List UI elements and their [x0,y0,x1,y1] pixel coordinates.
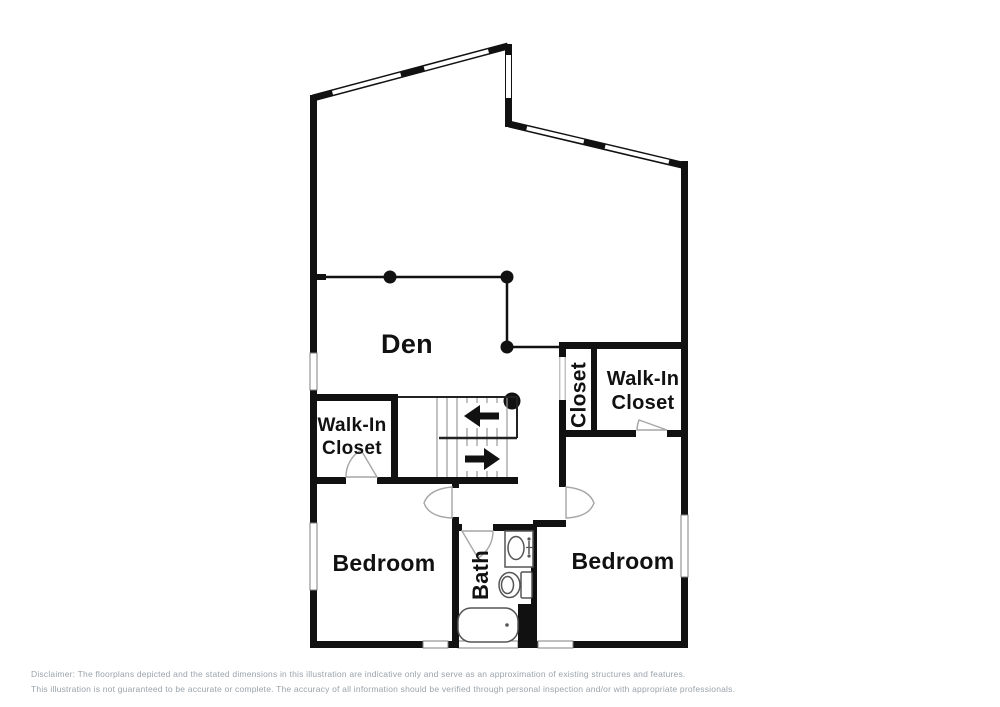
railing-post [501,341,514,354]
room-label-bedroom-left: Bedroom [332,550,435,578]
wall-closet-top [559,342,688,349]
window-wall-top-right [509,124,686,166]
window-bottom-1 [423,641,448,648]
wall-hall-top [310,477,518,484]
bathtub-icon [458,608,518,642]
opening-closet [559,357,566,400]
toilet-icon [499,572,532,598]
room-label-walk-in-closet-right: Walk-In Closet [607,367,679,415]
window-right-bedroom [681,515,688,577]
floorplan-page: Den Walk-In Closet Closet Walk-In Closet… [0,0,1000,707]
window-left-bedroom [310,523,317,590]
wall-closet-bottom [559,430,688,437]
railing-post [384,271,397,284]
window [527,128,584,141]
door-wic-right [637,420,667,430]
window-wall-peak [505,44,512,127]
wall-hall-left-upper [452,483,459,488]
room-label-line: Walk-In [318,415,387,436]
wall-bedroom-right-west-upper [559,437,566,487]
window [506,55,511,98]
floorplan-drawing [0,0,1000,707]
door-gap [636,430,667,437]
room-label-line: Walk-In [607,368,679,390]
room-label-den: Den [381,328,433,360]
window-wall-top-left [313,46,508,98]
room-label-bath: Bath [468,550,494,600]
room-label-line: Closet [607,391,679,415]
disclaimer: Disclaimer: The floorplans depicted and … [31,667,735,697]
window [605,147,669,162]
wall-hall-bottom-corner [533,520,566,527]
door-bedroom-left [424,487,452,518]
window-left-den [310,353,317,390]
wall-wic-left-right [391,394,398,484]
door-gap [346,477,377,484]
wall-wic-left-top [310,394,398,401]
railing-post [501,271,514,284]
staircase [398,397,517,477]
window-bottom-2 [538,641,573,648]
wall-bath-chase [518,604,537,648]
disclaimer-line-1: Disclaimer: The floorplans depicted and … [31,667,735,682]
stair-railing [313,271,559,410]
disclaimer-line-2: This illustration is not guaranteed to b… [31,682,735,697]
window [333,75,401,93]
wall-closet-divider [591,349,597,437]
window [424,51,488,68]
door-bedroom-right [566,487,594,518]
sink-icon [505,531,533,567]
room-label-line: Closet [318,438,387,461]
room-label-bedroom-right: Bedroom [571,548,674,576]
room-label-closet: Closet [566,362,591,428]
room-label-walk-in-closet-left: Walk-In Closet [318,415,387,461]
door-gap [462,524,493,531]
